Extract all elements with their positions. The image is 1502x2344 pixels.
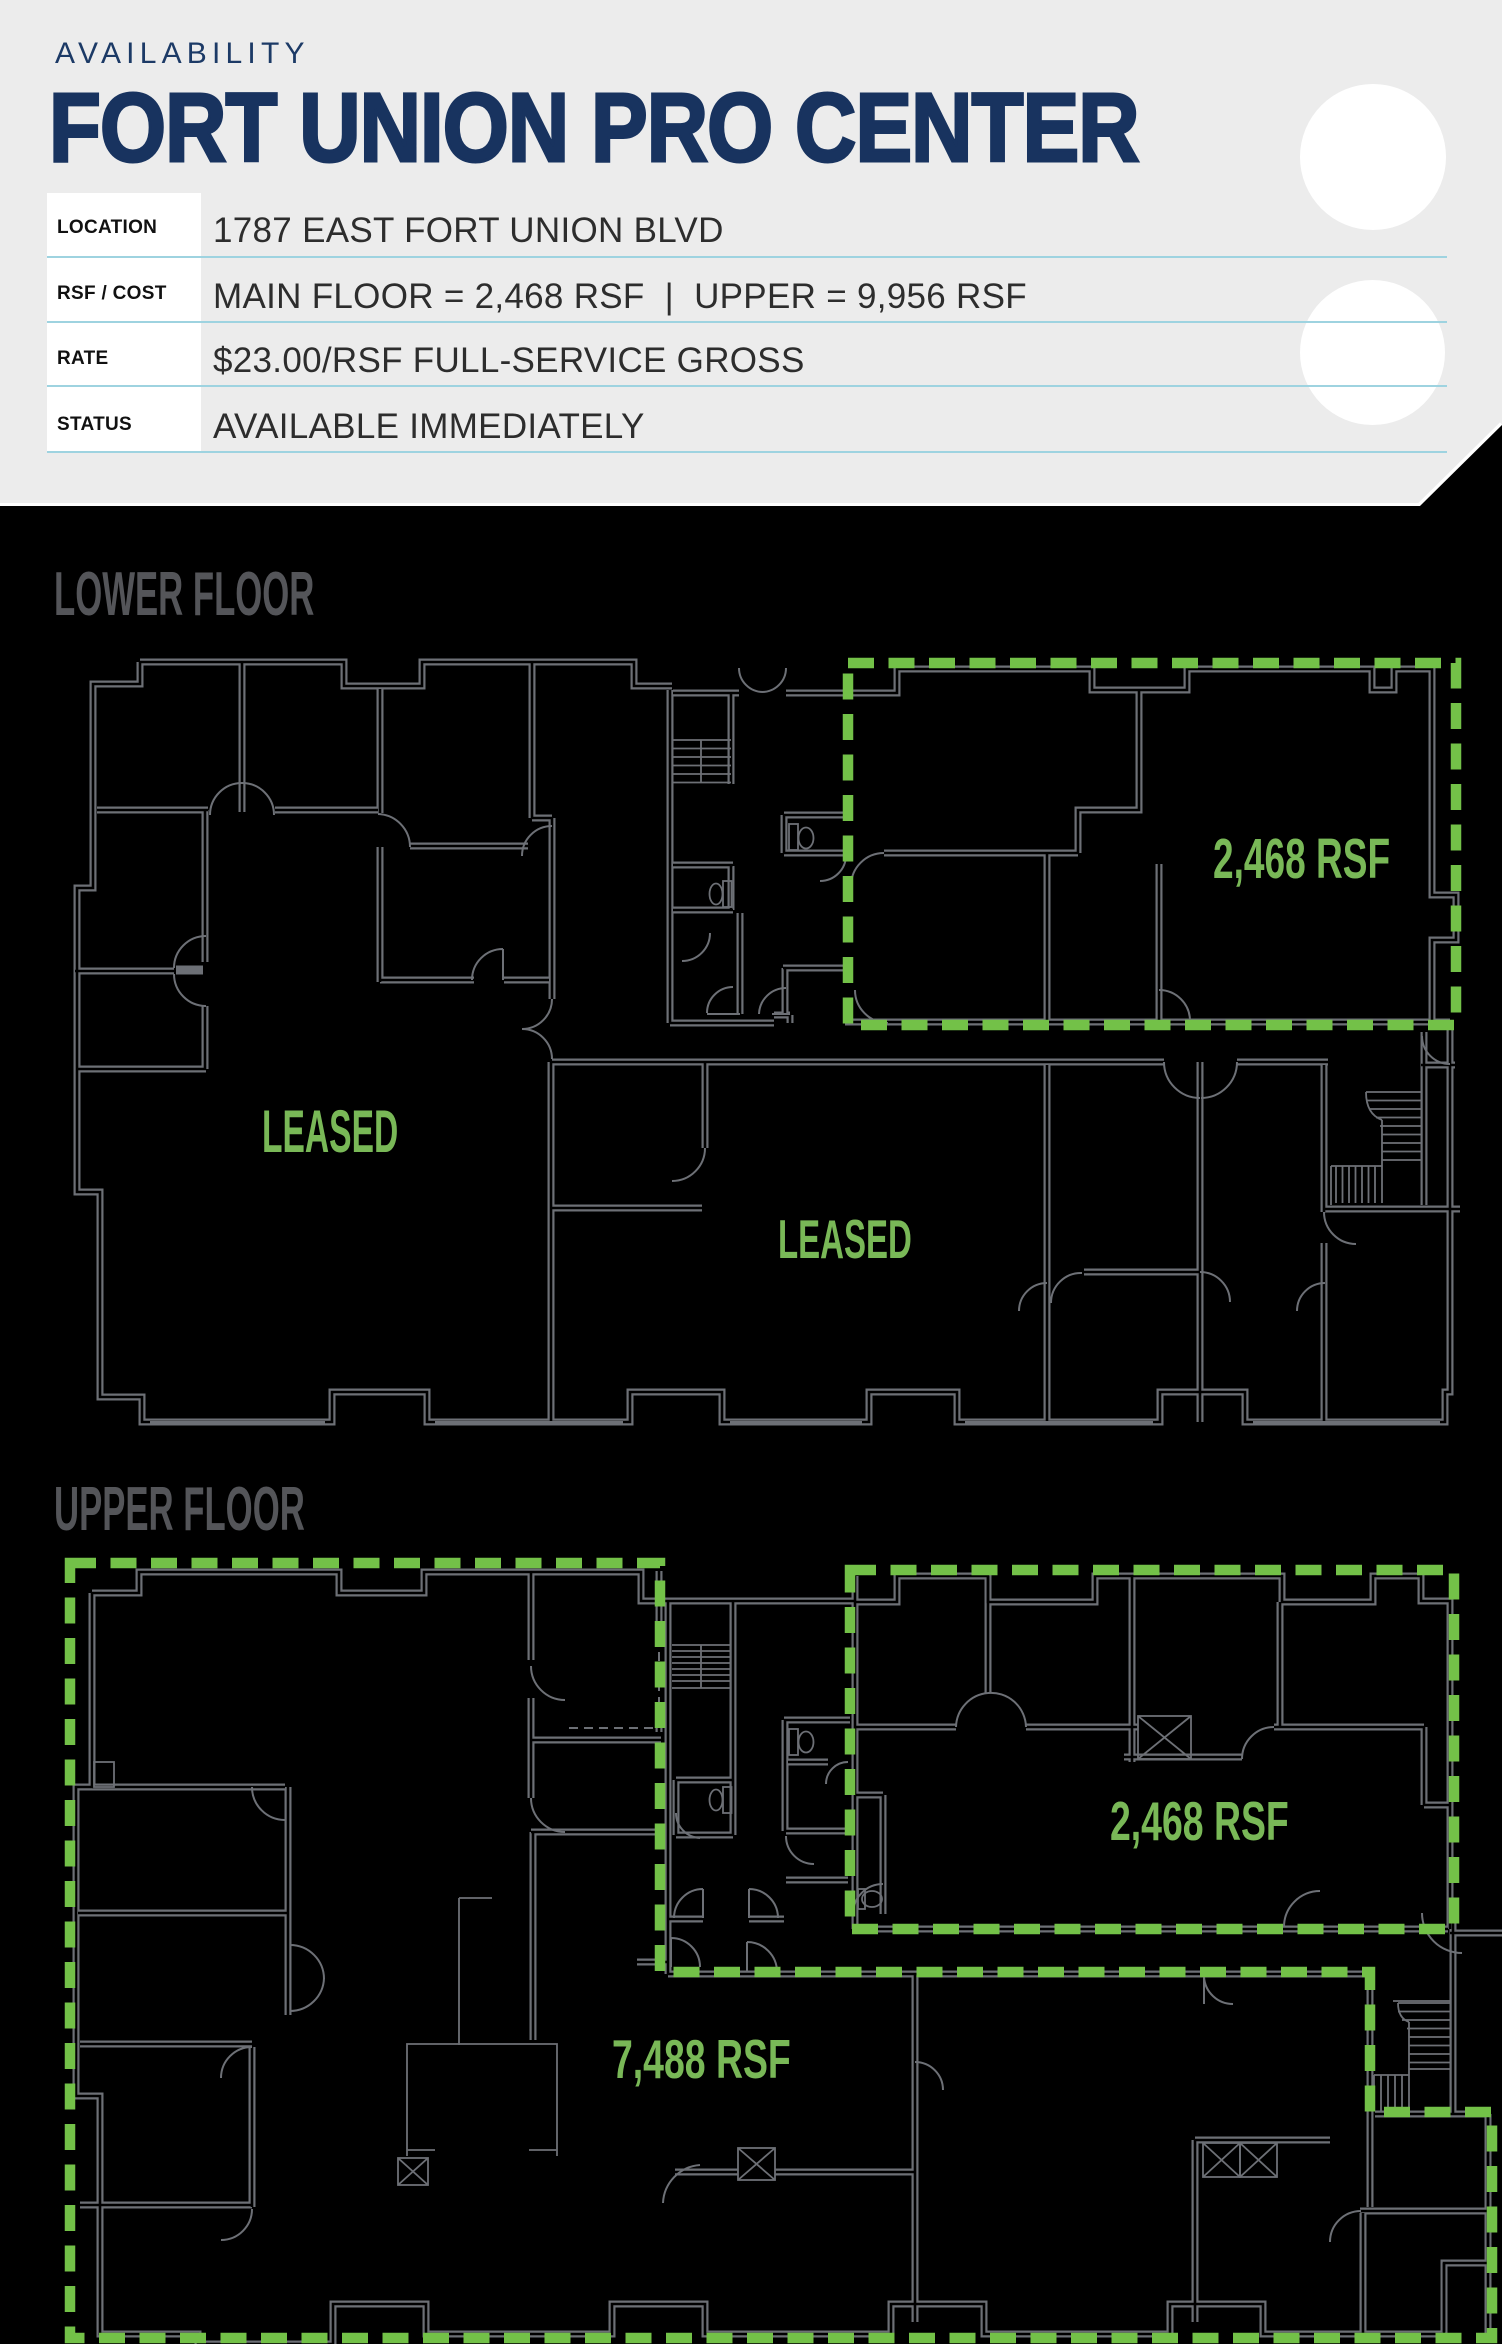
svg-text:7,488 RSF: 7,488 RSF [612, 2028, 791, 2090]
svg-text:2,468 RSF: 2,468 RSF [1110, 1790, 1289, 1852]
svg-text:2,468 RSF: 2,468 RSF [1213, 827, 1390, 891]
svg-text:LEASED: LEASED [778, 1208, 912, 1270]
svg-text:LEASED: LEASED [262, 1099, 398, 1166]
